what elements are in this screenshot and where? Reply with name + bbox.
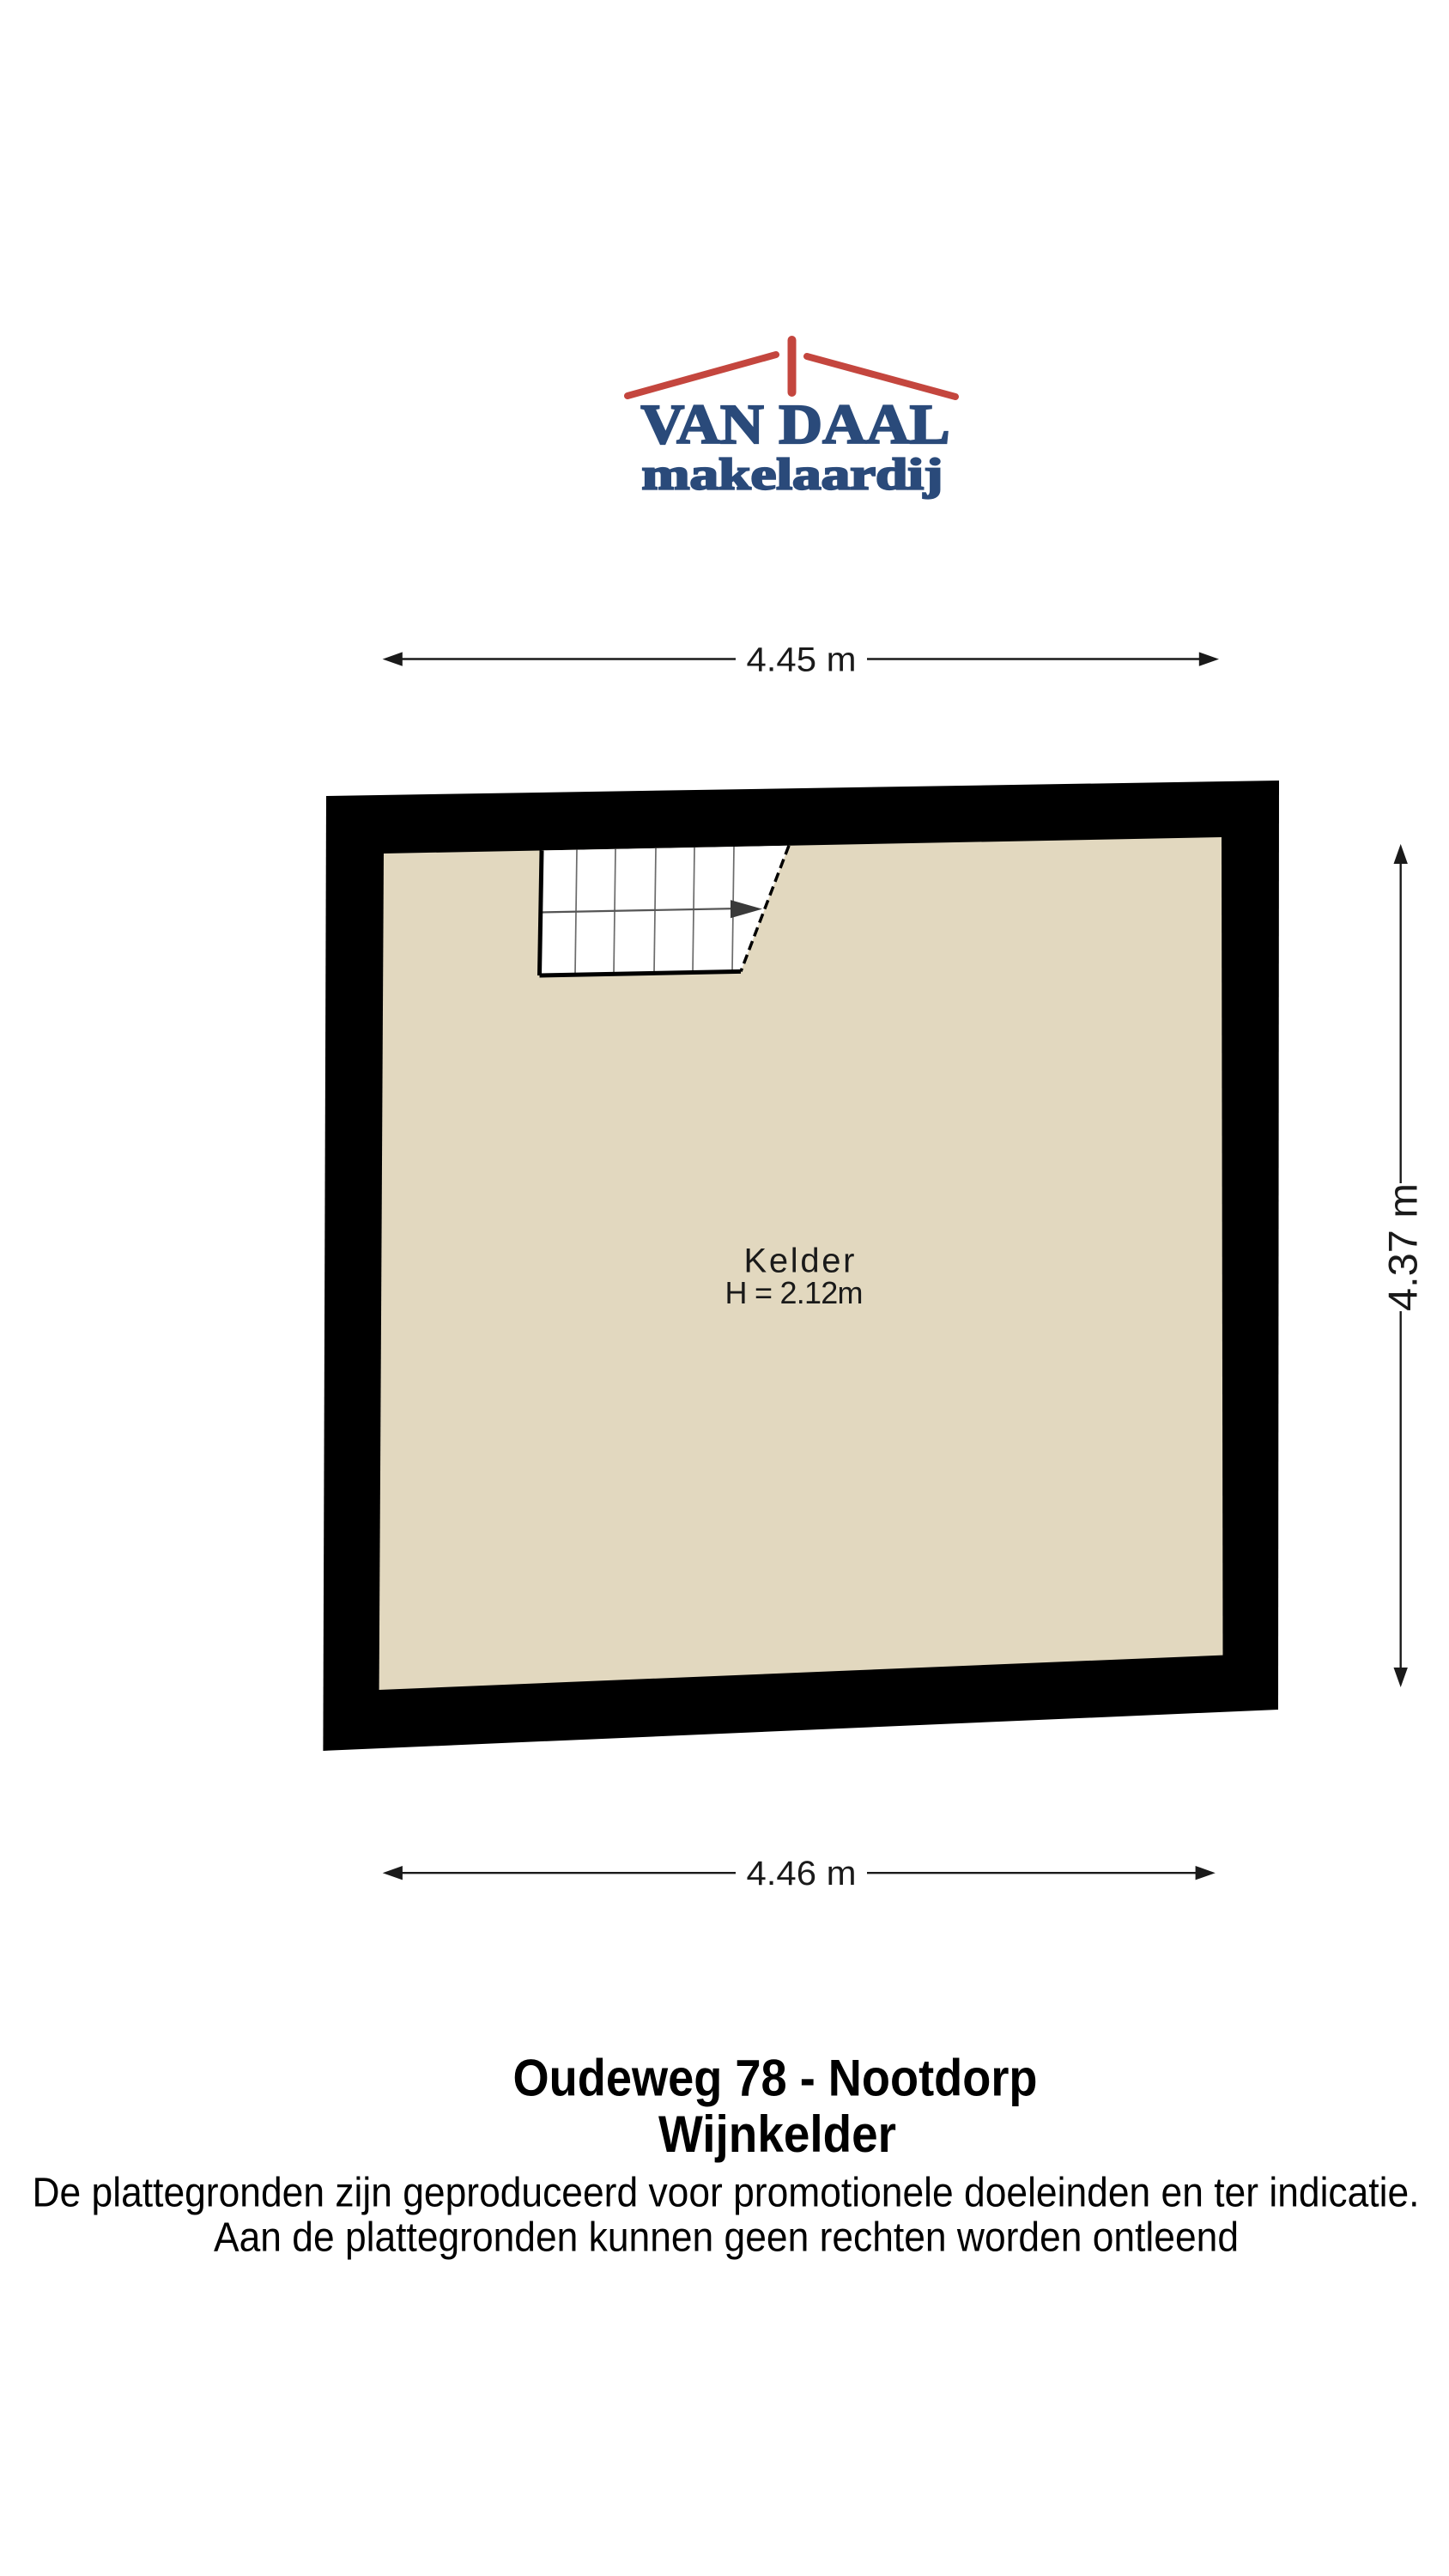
svg-text:VAN DAAL: VAN DAAL: [641, 393, 950, 456]
svg-text:4.37 m: 4.37 m: [1380, 1183, 1426, 1311]
svg-text:4.45 m: 4.45 m: [747, 641, 857, 679]
svg-text:H = 2.12m: H = 2.12m: [725, 1275, 864, 1310]
svg-text:Oudeweg 78 - Nootdorp: Oudeweg 78 - Nootdorp: [513, 2050, 1038, 2107]
svg-text:Aan de plattegronden kunnen ge: Aan de plattegronden kunnen geen rechten…: [214, 2215, 1239, 2260]
svg-text:makelaardij: makelaardij: [642, 451, 943, 500]
svg-text:De plattegronden zijn geproduc: De plattegronden zijn geproduceerd voor …: [33, 2170, 1420, 2215]
svg-text:Wijnkelder: Wijnkelder: [658, 2105, 896, 2163]
svg-text:4.46 m: 4.46 m: [747, 1855, 857, 1893]
